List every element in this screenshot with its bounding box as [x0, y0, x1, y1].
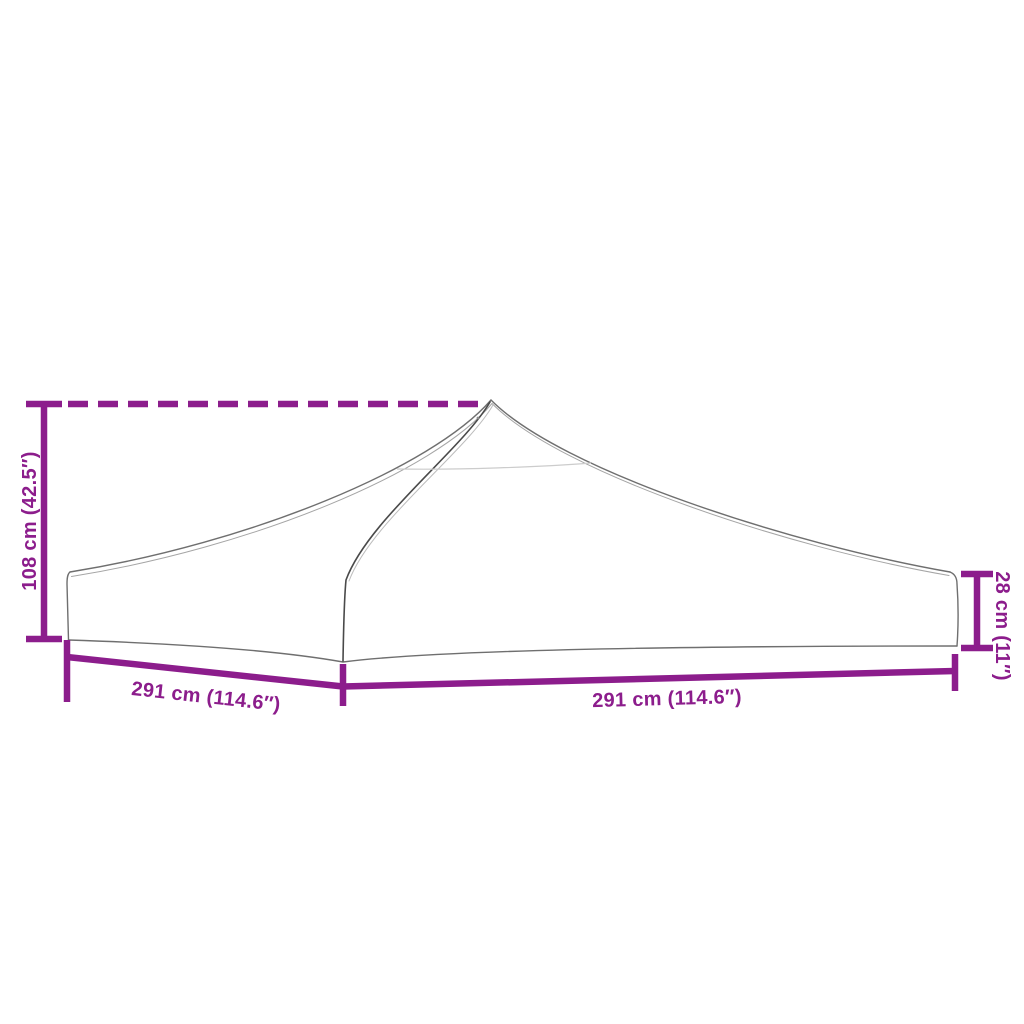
dimension-left-base: 291 cm (114.6″) — [67, 640, 343, 716]
tent-peak-speck — [477, 417, 480, 420]
left-base-label: 291 cm (114.6″) — [130, 678, 281, 716]
product-dimension-diagram: 108 cm (42.5″) 291 cm (114.6″) 291 cm (1… — [0, 0, 1024, 1024]
valance-height-label: 28 cm (11″) — [991, 571, 1013, 681]
dimension-valance-height: 28 cm (11″) — [961, 571, 1013, 681]
tent-left-edge — [67, 572, 70, 640]
dimension-right-base: 291 cm (114.6″) — [343, 654, 955, 712]
tent-bottom-hem — [69, 640, 958, 662]
tent-left-ridge-echo-line — [72, 404, 493, 577]
tent-canopy-outline — [67, 400, 958, 662]
tent-left-ridge-line — [70, 400, 491, 572]
tent-right-ridge-echo-line — [492, 404, 949, 576]
dimension-peak-height: 108 cm (42.5″) — [19, 404, 482, 639]
right-base-extent-line — [343, 671, 955, 687]
peak-height-label: 108 cm (42.5″) — [19, 451, 41, 590]
tent-center-seam-echo — [349, 405, 493, 581]
tent-right-ridge-line — [491, 400, 950, 572]
left-base-extent-line — [67, 657, 343, 687]
right-base-label: 291 cm (114.6″) — [592, 686, 742, 712]
diagram-canvas: 108 cm (42.5″) 291 cm (114.6″) 291 cm (1… — [0, 0, 1024, 1024]
tent-center-seam — [343, 402, 490, 661]
tent-eave-seam-faint — [397, 463, 591, 469]
tent-right-edge — [950, 572, 958, 646]
